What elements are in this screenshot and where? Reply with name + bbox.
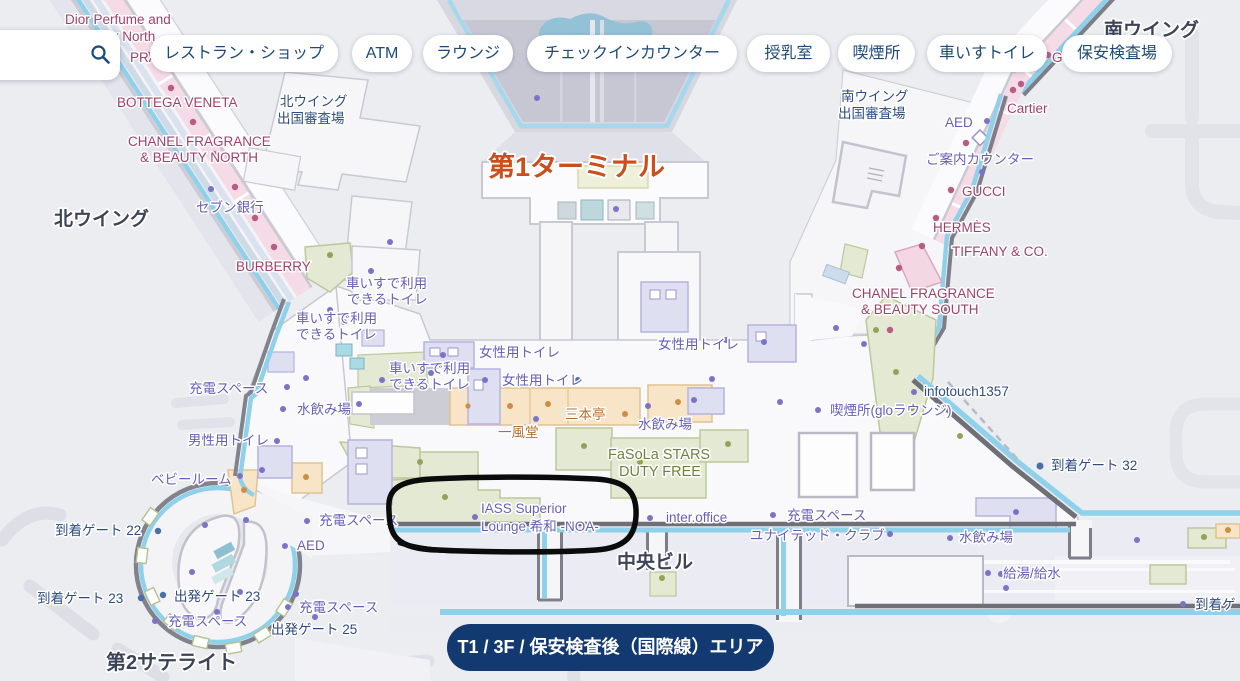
svg-text:男性用トイレ: 男性用トイレ <box>188 433 269 448</box>
svg-text:BOTTEGA VENETA: BOTTEGA VENETA <box>117 95 238 110</box>
svg-text:CHANEL FRAGRANCE: CHANEL FRAGRANCE <box>852 286 995 301</box>
svg-text:HERMÈS: HERMÈS <box>933 220 991 235</box>
svg-text:女性用トイレ: 女性用トイレ <box>502 372 583 388</box>
svg-text:BURBERRY: BURBERRY <box>236 259 311 274</box>
svg-text:できるトイレ: できるトイレ <box>347 292 428 307</box>
svg-text:充電スペース: 充電スペース <box>168 614 247 629</box>
svg-text:FaSoLa STARS: FaSoLa STARS <box>608 447 710 463</box>
svg-text:出国審査場: 出国審査場 <box>838 106 906 121</box>
svg-text:出発ゲート 25: 出発ゲート 25 <box>271 622 357 637</box>
svg-text:車いすで利用: 車いすで利用 <box>389 361 470 376</box>
svg-text:GUCCI: GUCCI <box>962 184 1006 199</box>
svg-text:inter.office: inter.office <box>666 510 727 525</box>
svg-text:北ウイング: 北ウイング <box>54 207 149 230</box>
svg-text:AED: AED <box>945 115 973 130</box>
svg-text:到着ゲート 32: 到着ゲート 32 <box>1051 457 1137 473</box>
svg-text:セブン銀行: セブン銀行 <box>196 199 264 215</box>
svg-text:充電スペース: 充電スペース <box>787 508 866 523</box>
svg-text:& BEAUTY NORTH: & BEAUTY NORTH <box>140 150 258 165</box>
svg-text:充電スペース: 充電スペース <box>189 381 268 396</box>
svg-text:水飲み場: 水飲み場 <box>297 402 351 417</box>
svg-text:できるトイレ: できるトイレ <box>389 377 470 392</box>
svg-text:infotouch1357: infotouch1357 <box>924 384 1009 399</box>
svg-text:到着ゲ: 到着ゲ <box>1195 596 1236 612</box>
svg-text:一風堂: 一風堂 <box>498 425 539 440</box>
svg-text:CHANEL FRAGRANCE: CHANEL FRAGRANCE <box>128 134 271 149</box>
svg-text:ご案内カウンター: ご案内カウンター <box>926 151 1034 167</box>
svg-text:喫煙所(gloラウンジ): 喫煙所(gloラウンジ) <box>830 403 952 418</box>
svg-text:車いすで利用: 車いすで利用 <box>346 276 427 291</box>
svg-text:到着ゲート 22: 到着ゲート 22 <box>55 522 141 538</box>
svg-text:Cartier: Cartier <box>1007 101 1048 116</box>
svg-text:& BEAUTY SOUTH: & BEAUTY SOUTH <box>861 302 979 317</box>
svg-text:ベビールーム: ベビールーム <box>151 472 232 487</box>
svg-text:出発ゲート 23: 出発ゲート 23 <box>174 589 260 604</box>
svg-text:Dior Perfume and: Dior Perfume and <box>65 12 171 27</box>
svg-text:Lounge 希和 -NOA-: Lounge 希和 -NOA- <box>481 519 599 534</box>
svg-text:中央ビル: 中央ビル <box>617 550 693 573</box>
svg-text:南ウイング: 南ウイング <box>841 89 909 104</box>
svg-text:三本亭: 三本亭 <box>565 406 606 422</box>
svg-text:AED: AED <box>297 538 325 553</box>
svg-text:水飲み場: 水飲み場 <box>638 417 692 432</box>
svg-text:到着ゲート 23: 到着ゲート 23 <box>37 590 123 606</box>
svg-text:DUTY FREE: DUTY FREE <box>619 464 701 480</box>
svg-text:できるトイレ: できるトイレ <box>296 327 377 342</box>
svg-text:女性用トイレ: 女性用トイレ <box>658 336 739 352</box>
svg-text:給湯/給水: 給湯/給水 <box>1003 565 1061 581</box>
svg-text:出国審査場: 出国審査場 <box>277 111 345 126</box>
svg-text:TIFFANY & CO.: TIFFANY & CO. <box>952 244 1048 259</box>
svg-text:車いすで利用: 車いすで利用 <box>296 311 377 326</box>
svg-text:北ウイング: 北ウイング <box>280 94 348 109</box>
svg-text:第1ターミナル: 第1ターミナル <box>488 151 665 182</box>
svg-text:第2サテライト: 第2サテライト <box>106 650 237 674</box>
svg-text:IASS Superior: IASS Superior <box>481 501 567 516</box>
svg-text:水飲み場: 水飲み場 <box>959 530 1013 545</box>
svg-text:ユナイテッド・クラブ: ユナイテッド・クラブ <box>750 527 885 543</box>
svg-text:女性用トイレ: 女性用トイレ <box>479 344 560 360</box>
svg-text:充電スペース: 充電スペース <box>299 600 378 615</box>
